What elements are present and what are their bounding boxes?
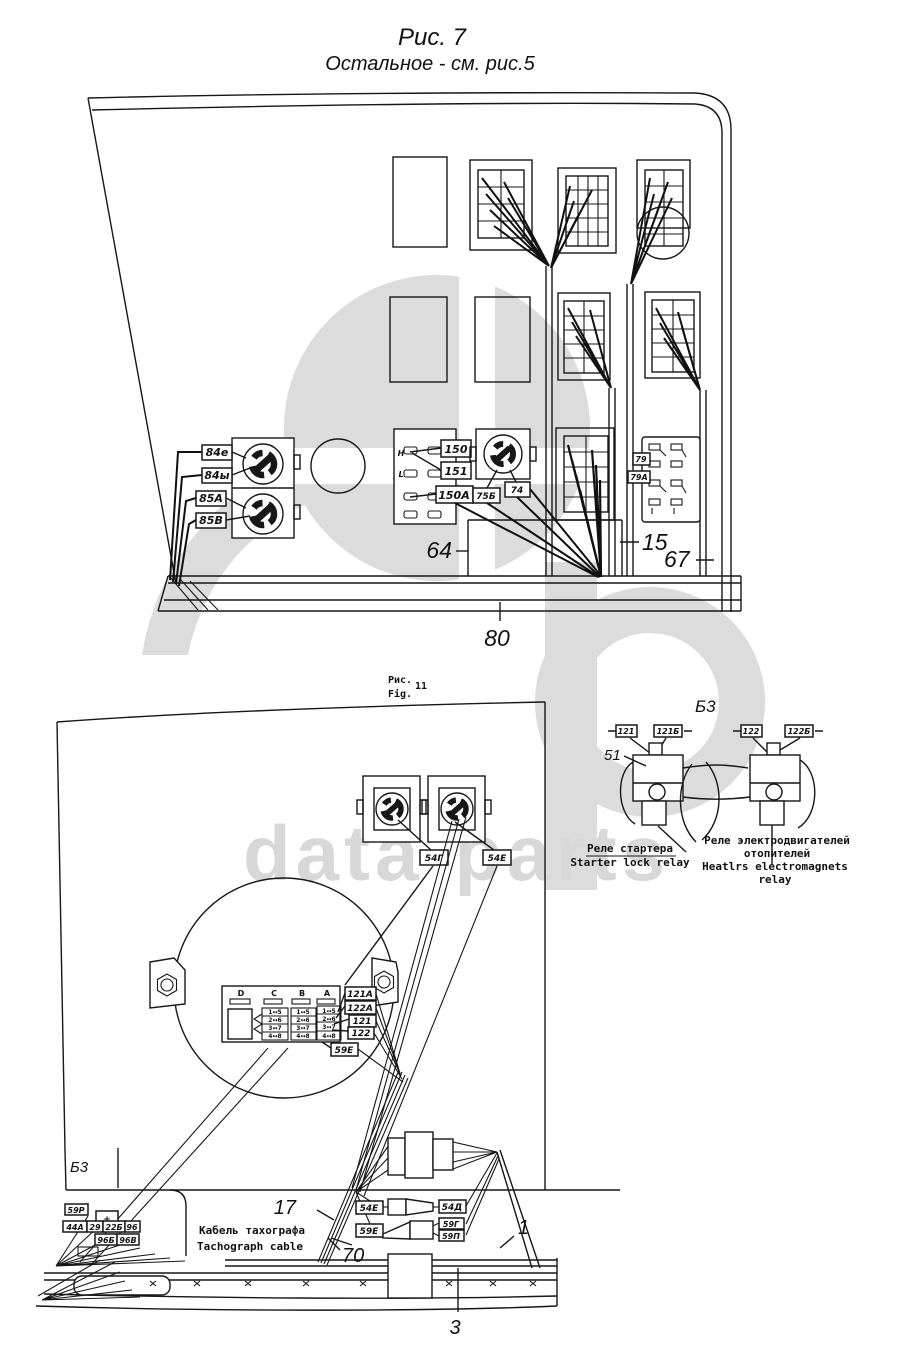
cable-caption-ru: Кабель тахографа: [199, 1224, 305, 1237]
svg-text:2↔6: 2↔6: [296, 1017, 309, 1024]
svg-text:121: 121: [353, 1017, 372, 1027]
wire-label-59g: 59Г: [439, 1218, 464, 1229]
wire-label-79: 79: [633, 453, 650, 465]
wire-label-85v: 85В: [196, 513, 226, 528]
part-number-70: 70: [342, 1245, 364, 1267]
fig11-connector-plate: D C B A 1↔5 2↔6 3↔7 4↔8 1↔5 2↔6 3↔7 4↔8 …: [222, 986, 376, 1056]
wire-label-75b: 75Б: [473, 488, 500, 503]
panel-mark-l: L: [398, 470, 403, 479]
part-number-67: 67: [664, 546, 691, 572]
fig7-connector-block: 79 79А: [628, 437, 700, 522]
svg-text:84е: 84е: [206, 446, 229, 459]
svg-text:79: 79: [635, 455, 647, 464]
svg-text:96: 96: [126, 1223, 138, 1232]
svg-text:122Б: 122Б: [788, 727, 811, 736]
svg-text:4↔8: 4↔8: [296, 1033, 309, 1040]
svg-text:22Б: 22Б: [105, 1223, 122, 1232]
wire-label-54e-mid: 54Е: [356, 1201, 383, 1214]
plate-col-c: C: [271, 989, 277, 998]
svg-text:2↔6: 2↔6: [268, 1017, 281, 1024]
wire-label-96b: 96Б: [95, 1234, 117, 1245]
svg-text:150А: 150А: [438, 489, 469, 502]
wire-label-121a: 121А: [345, 987, 376, 1000]
diagram-canvas: data-parts Рис. 7 Остальное - см. рис.5: [0, 0, 899, 1356]
svg-text:59П: 59П: [442, 1232, 460, 1241]
part-number-64: 64: [426, 537, 452, 563]
wire-label-29: 29: [87, 1221, 103, 1232]
fig11-caption-en: Fig.: [388, 688, 412, 700]
cable-caption-en: Tachograph cable: [197, 1240, 303, 1253]
fig11-cable-tray: [36, 1254, 557, 1310]
svg-text:122А: 122А: [347, 1004, 373, 1014]
svg-text:122: 122: [743, 727, 760, 736]
wire-label-122: 122: [348, 1027, 374, 1039]
svg-text:59Е: 59Е: [335, 1046, 355, 1056]
wire-label-121: 121: [349, 1015, 376, 1027]
heater-relay-caption-ru2: отопителей: [744, 847, 810, 860]
figure-title: Рис. 7: [398, 24, 468, 51]
part-number-1: 1: [518, 1217, 529, 1239]
fig11-caption-ru: Рис.: [388, 675, 412, 686]
wire-label-96v: 96В: [117, 1234, 139, 1245]
svg-text:1↔5: 1↔5: [268, 1009, 281, 1016]
svg-text:121А: 121А: [347, 990, 373, 1000]
wire-label-44a: 44А: [63, 1221, 87, 1232]
part-number-51: 51: [604, 747, 621, 764]
wire-label-84y: 84ы: [202, 468, 232, 483]
pin-label-121b: 121Б: [654, 725, 682, 737]
heater-relay-caption-en2: relay: [758, 873, 791, 886]
starter-relay-caption-ru: Реле стартера: [587, 842, 673, 855]
svg-text:59Г: 59Г: [443, 1220, 460, 1229]
svg-text:44А: 44А: [65, 1223, 83, 1232]
wire-label-84e: 84е: [202, 445, 232, 460]
part-number-80: 80: [484, 625, 510, 651]
wire-label-96: 96: [125, 1221, 140, 1232]
scanned-wiring-diagram-page: data-parts Рис. 7 Остальное - см. рис.5: [0, 0, 899, 1356]
b3-ref-left: Б3: [70, 1159, 89, 1176]
fig11-corner-cluster: 59Р + 44А 29 22Б 96 96Б 96В: [56, 1204, 185, 1266]
svg-text:4↔8: 4↔8: [322, 1033, 335, 1040]
svg-text:54Е: 54Е: [488, 854, 508, 864]
fig11-caption: Рис. 11 Fig.: [388, 675, 427, 700]
svg-text:59Р: 59Р: [68, 1206, 85, 1215]
svg-text:54Е: 54Е: [360, 1204, 380, 1214]
wire-label-54e-top: 54Е: [483, 850, 511, 865]
pin-label-122: 122: [741, 725, 762, 737]
wire-label-74: 74: [505, 482, 530, 497]
svg-text:3↔7: 3↔7: [268, 1025, 281, 1032]
svg-text:85В: 85В: [199, 514, 223, 527]
svg-text:121Б: 121Б: [657, 727, 680, 736]
wire-label-122a: 122А: [345, 1001, 376, 1014]
svg-text:150: 150: [445, 443, 468, 456]
pin-label-121: 121: [616, 725, 637, 737]
heater-relay-caption-en1: Heatlrs electromagnets: [702, 860, 848, 873]
svg-text:1↔5: 1↔5: [322, 1008, 335, 1015]
plate-col-d: D: [238, 989, 245, 998]
svg-text:122: 122: [352, 1029, 371, 1039]
fig11-caption-num: 11: [415, 681, 427, 692]
tray-clip-marks: [150, 1281, 536, 1286]
wire-label-59p: 59П: [439, 1230, 464, 1241]
svg-text:54Д: 54Д: [442, 1203, 463, 1213]
plate-col-b: B: [299, 989, 305, 998]
part-number-17: 17: [274, 1197, 297, 1219]
svg-text:74: 74: [511, 486, 524, 496]
figure-subtitle: Остальное - см. рис.5: [325, 53, 535, 75]
svg-text:85А: 85А: [199, 492, 223, 505]
svg-text:2↔6: 2↔6: [322, 1016, 335, 1023]
wire-label-59e-mid: 59Е: [356, 1224, 383, 1237]
svg-text:96В: 96В: [119, 1236, 136, 1245]
wire-label-85a: 85А: [196, 491, 226, 506]
wire-label-59r: 59Р: [65, 1204, 88, 1215]
starter-relay-caption-en: Starter lock relay: [570, 856, 690, 869]
wire-label-150: 150: [441, 440, 471, 457]
svg-text:75Б: 75Б: [476, 492, 496, 502]
svg-text:84ы: 84ы: [204, 469, 229, 482]
svg-text:79А: 79А: [630, 473, 647, 482]
b3-title: Б3: [695, 697, 716, 716]
plate-col-a: A: [324, 989, 331, 998]
svg-text:96Б: 96Б: [97, 1236, 114, 1245]
part-number-3: 3: [449, 1317, 460, 1339]
svg-text:59Е: 59Е: [360, 1227, 380, 1237]
heater-relay-caption-ru1: Реле электродвигателей: [704, 834, 850, 847]
wire-label-22b: 22Б: [103, 1221, 125, 1232]
svg-text:121: 121: [618, 727, 635, 736]
svg-text:1↔5: 1↔5: [296, 1009, 309, 1016]
pin-label-122b: 122Б: [785, 725, 813, 737]
svg-text:4↔8: 4↔8: [268, 1033, 281, 1040]
svg-text:3↔7: 3↔7: [296, 1025, 309, 1032]
svg-text:29: 29: [89, 1223, 101, 1232]
wire-label-59e: 59Е: [331, 1043, 358, 1056]
svg-text:151: 151: [445, 465, 468, 478]
wire-label-79a: 79А: [628, 471, 650, 483]
fig11-tachograph: [150, 866, 433, 1098]
wire-label-150a: 150А: [436, 486, 473, 503]
wire-label-151: 151: [441, 462, 471, 479]
fig11-panel-outline: [57, 702, 620, 1256]
wire-label-54d: 54Д: [439, 1200, 466, 1213]
